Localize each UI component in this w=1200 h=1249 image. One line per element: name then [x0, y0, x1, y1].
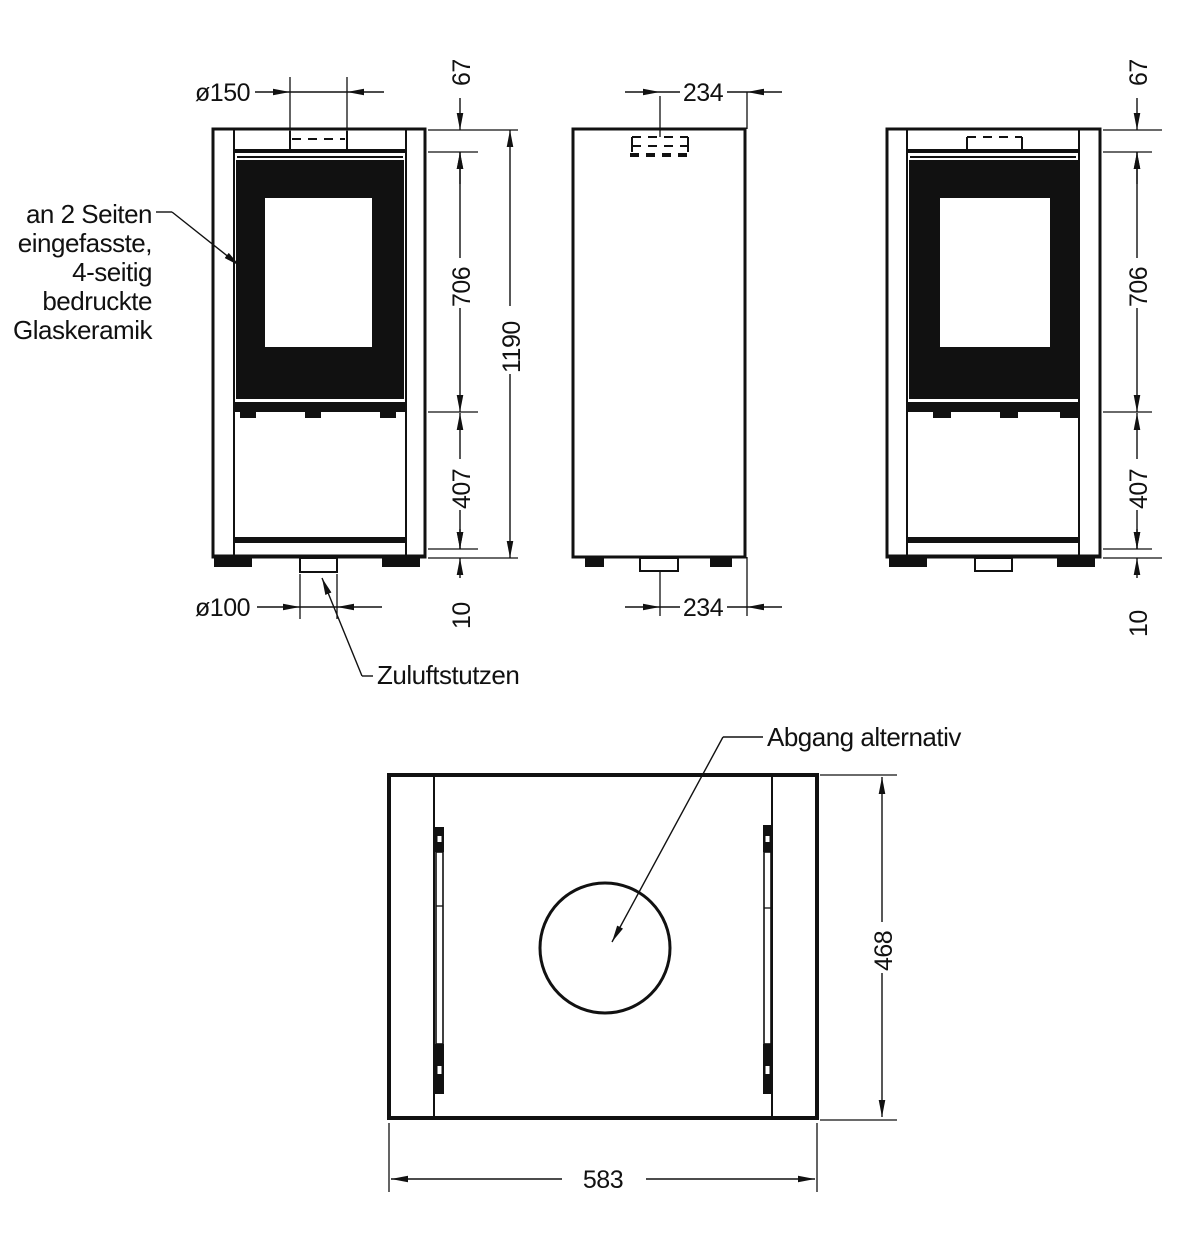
dim-flue-offset: 234 — [683, 79, 724, 107]
rear-view-dimensions: 67 706 407 10 — [1103, 59, 1162, 637]
flue-collar-front — [290, 131, 347, 151]
dim-inlet-diameter: ø100 — [195, 594, 250, 622]
hinge-strip-left — [435, 827, 444, 1094]
glass-door-rear — [907, 157, 1079, 418]
glass-note-line-4: bedruckte — [42, 286, 152, 316]
dim-rear-lower-height: 407 — [1125, 469, 1153, 509]
hinge-strip-right — [763, 825, 772, 1094]
front-view — [213, 129, 425, 572]
alternative-outlet-circle — [540, 883, 670, 1013]
glass-note-line-2: eingefasste, — [18, 228, 152, 258]
glass-door-front — [234, 157, 406, 418]
air-inlet-stub-rear — [975, 558, 1012, 571]
flue-collar-side — [630, 137, 690, 155]
rear-view — [887, 129, 1100, 571]
top-view-dimensions: 468 583 — [389, 775, 898, 1194]
dim-rear-top-offset: 67 — [1125, 59, 1153, 86]
alt-outlet-label: Abgang alternativ — [612, 722, 961, 942]
side-view-dimensions: 234 234 — [625, 79, 782, 622]
glass-note-line-5: Glaskeramik — [13, 315, 153, 345]
dim-depth: 468 — [870, 931, 898, 971]
top-view — [389, 775, 817, 1118]
dim-door-height: 706 — [448, 267, 476, 307]
glass-note-line-3: 4-seitig — [72, 257, 152, 287]
air-inlet-stub-front — [300, 558, 337, 572]
dim-width: 583 — [583, 1166, 623, 1194]
dim-top-offset: 67 — [448, 59, 476, 86]
air-inlet-label: Zuluftstutzen — [322, 578, 519, 690]
dim-flue-diameter: ø150 — [195, 79, 250, 107]
glass-note-line-1: an 2 Seiten — [26, 199, 152, 229]
technical-drawing-page: ø150 67 706 407 10 1190 ø100 — [0, 0, 1200, 1249]
dim-total-height: 1190 — [498, 321, 526, 373]
dim-lower-height: 407 — [448, 469, 476, 509]
dim-inlet-offset: 234 — [683, 594, 724, 622]
alt-outlet-label-text: Abgang alternativ — [767, 722, 961, 752]
side-view — [573, 129, 745, 571]
dim-base-gap: 10 — [448, 602, 476, 629]
glass-note: an 2 Seiten eingefasste, 4-seitig bedruc… — [13, 199, 240, 345]
dim-rear-base-gap: 10 — [1125, 610, 1153, 637]
stove-dimension-drawing: ø150 67 706 407 10 1190 ø100 — [0, 0, 1200, 1249]
air-inlet-stub-side — [640, 558, 678, 571]
dim-rear-door-height: 706 — [1125, 267, 1153, 307]
air-inlet-label-text: Zuluftstutzen — [377, 660, 519, 690]
